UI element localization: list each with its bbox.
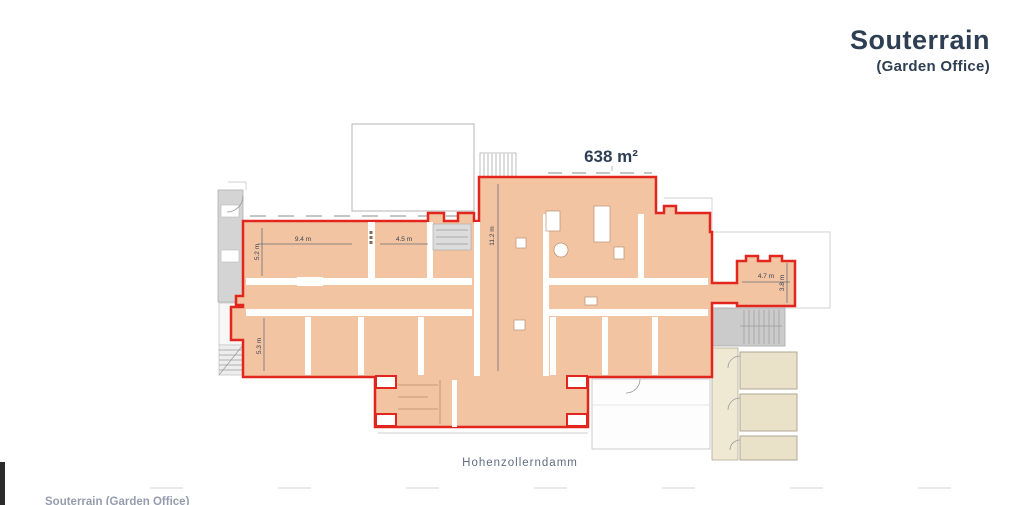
dimension-label-5-3: 5.3 m bbox=[256, 338, 263, 354]
footer-partial-caption: Souterrain (Garden Office) bbox=[45, 496, 265, 505]
page-subtitle: (Garden Office) bbox=[850, 58, 990, 75]
dimension-label-4-7: 4.7 m bbox=[758, 273, 774, 280]
page-title: Souterrain bbox=[850, 26, 990, 54]
title-block: Souterrain (Garden Office) bbox=[850, 26, 990, 75]
tiny-wall-label bbox=[370, 231, 373, 244]
staircase-right bbox=[712, 308, 785, 346]
slide: 9.4 m 4.5 m 5.2 m 11.2 m 4.7 m 3.8 m 5.3… bbox=[0, 0, 1024, 505]
footer-tick-row bbox=[55, 487, 965, 489]
room-bottom-right bbox=[592, 379, 710, 449]
floor-plan: 9.4 m 4.5 m 5.2 m 11.2 m 4.7 m 3.8 m 5.3… bbox=[0, 0, 1024, 505]
cellar-rooms bbox=[712, 348, 797, 460]
left-edge-bar bbox=[0, 462, 5, 505]
dimension-label-4-5: 4.5 m bbox=[396, 236, 412, 243]
faint-outline-topleft bbox=[228, 182, 246, 190]
left-service-strip bbox=[218, 190, 243, 302]
dimension-label-11-2: 11.2 m bbox=[489, 226, 496, 245]
dimension-label-3-8: 3.8 m bbox=[779, 275, 786, 291]
dimension-label-9-4: 9.4 m bbox=[295, 236, 311, 243]
staircase-top bbox=[480, 153, 516, 177]
area-label: 638 m² bbox=[584, 147, 638, 166]
dimension-label-5-2: 5.2 m bbox=[254, 244, 261, 260]
lightwell-top bbox=[352, 124, 474, 211]
street-label: Hohenzollerndamm bbox=[462, 457, 578, 469]
